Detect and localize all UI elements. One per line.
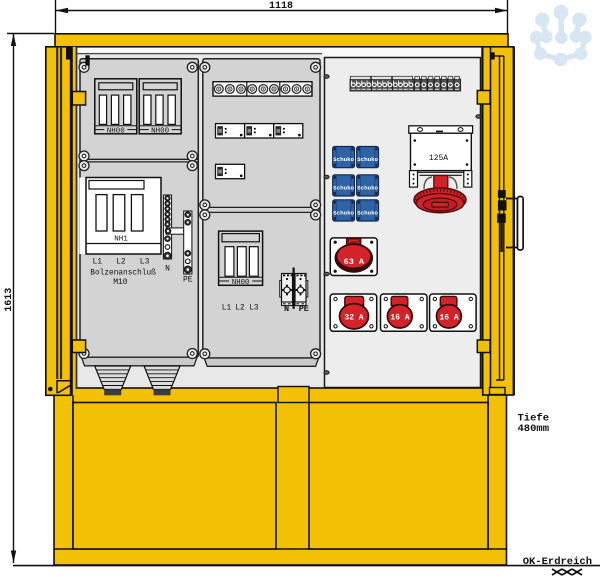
svg-text:1613: 1613 bbox=[4, 288, 15, 312]
svg-text:N: N bbox=[165, 264, 170, 273]
svg-text:L3: L3 bbox=[249, 305, 259, 313]
svg-text:NH00: NH00 bbox=[232, 279, 250, 287]
svg-text:L2: L2 bbox=[116, 258, 126, 267]
svg-text:L2: L2 bbox=[235, 305, 245, 313]
svg-text:16 A: 16 A bbox=[439, 314, 458, 323]
svg-text:M10: M10 bbox=[113, 278, 128, 287]
svg-text:PE: PE bbox=[183, 276, 193, 285]
svg-text:NH1: NH1 bbox=[114, 236, 128, 244]
svg-text:63 A: 63 A bbox=[344, 257, 365, 267]
svg-text:N: N bbox=[284, 304, 289, 314]
svg-text:32 A: 32 A bbox=[344, 314, 363, 323]
svg-text:16 A: 16 A bbox=[390, 314, 409, 323]
svg-text:L1: L1 bbox=[93, 258, 103, 267]
svg-text:1118: 1118 bbox=[269, 1, 293, 12]
svg-text:L3: L3 bbox=[140, 258, 150, 267]
svg-text:125A: 125A bbox=[429, 154, 448, 163]
svg-text:OK-Erdreich: OK-Erdreich bbox=[523, 556, 592, 568]
svg-text:PE: PE bbox=[299, 304, 309, 314]
svg-text:Bolzenanschluß: Bolzenanschluß bbox=[90, 270, 156, 278]
svg-text:L1: L1 bbox=[222, 305, 232, 313]
svg-text:480mm: 480mm bbox=[518, 423, 550, 435]
